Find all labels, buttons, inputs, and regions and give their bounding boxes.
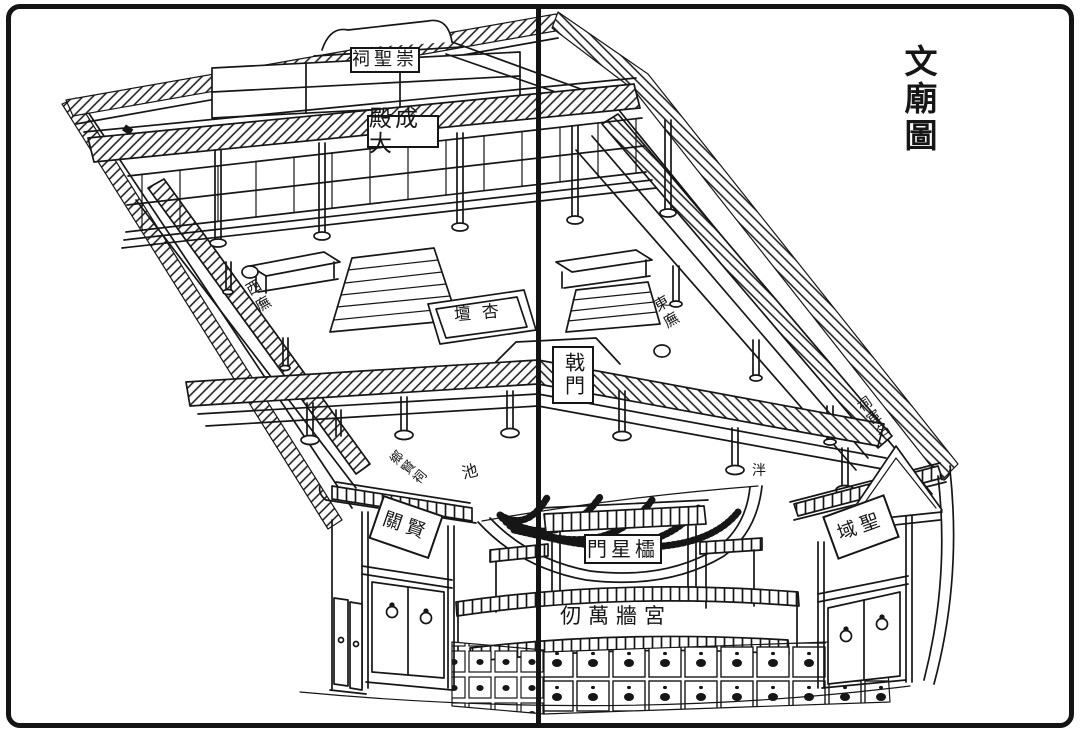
print-frame [6, 4, 1074, 728]
woodblock-print-page: 文廟圖 祠聖崇 殿成大 戟門 門星櫺 關賢 域聖 仞萬牆宮 西廡 東廡 壇杏 池… [0, 0, 1080, 734]
